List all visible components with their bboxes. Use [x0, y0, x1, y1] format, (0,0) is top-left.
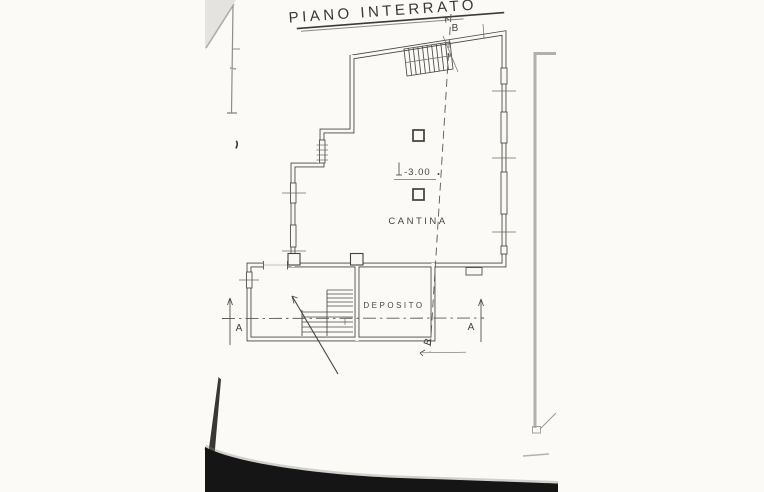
window	[501, 68, 507, 84]
wall-pier	[351, 254, 364, 266]
wall-niche	[466, 268, 482, 276]
paper-background	[0, 0, 764, 492]
section-label-b-top: B	[452, 23, 459, 34]
level-dot	[438, 173, 440, 175]
window	[501, 246, 507, 254]
floor-plan-drawing: PIANO INTERRATO	[0, 0, 764, 492]
scanned-floor-plan-page: PIANO INTERRATO	[0, 0, 764, 492]
wall-pier	[288, 254, 300, 266]
window	[320, 140, 326, 163]
section-label-a-right: A	[468, 322, 475, 333]
window	[291, 225, 297, 247]
page-edge-tick	[230, 68, 236, 69]
room-label-cantina: CANTINA	[388, 216, 447, 227]
window	[501, 112, 507, 143]
door-opening	[263, 262, 288, 270]
section-label-a-left: A	[236, 323, 243, 334]
window	[501, 172, 507, 214]
level-value: -3.00	[404, 167, 431, 178]
room-label-deposito: DEPOSITO	[363, 301, 424, 310]
